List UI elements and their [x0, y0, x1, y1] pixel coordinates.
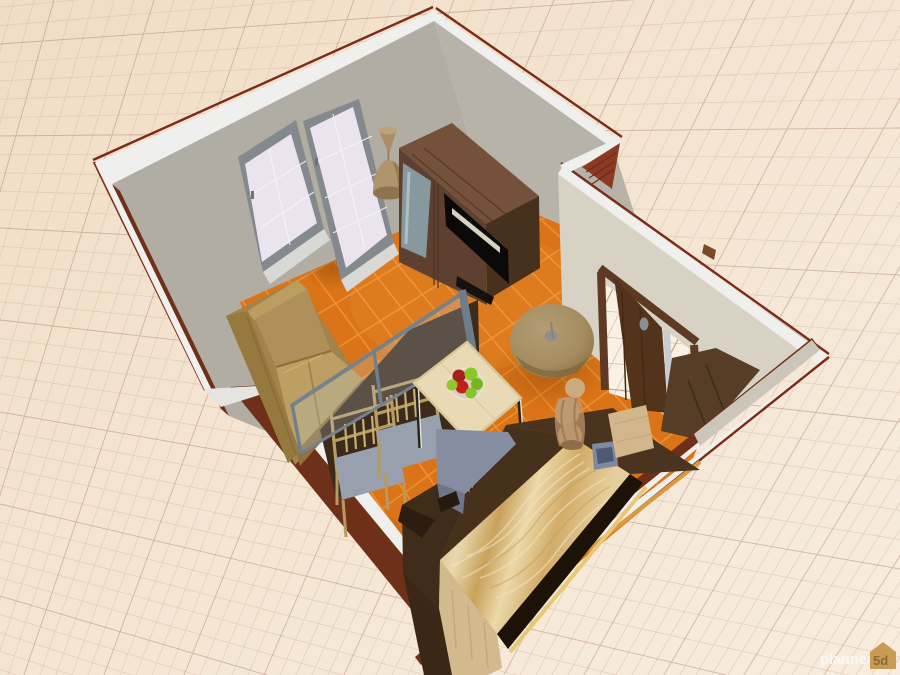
svg-text:planner: planner: [820, 651, 873, 668]
svg-text:5d: 5d: [873, 653, 888, 668]
